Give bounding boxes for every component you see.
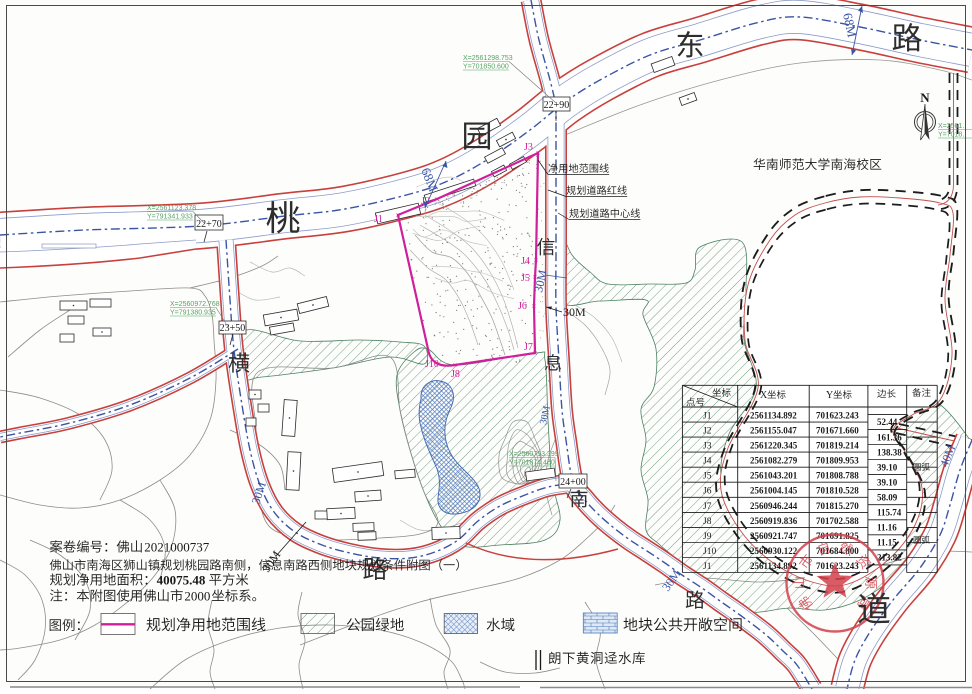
svg-text:X=2560972.768: X=2560972.768 xyxy=(170,301,220,308)
svg-text:J5: J5 xyxy=(703,472,712,482)
svg-text:701702.588: 701702.588 xyxy=(816,516,859,526)
svg-text:22+90: 22+90 xyxy=(544,100,570,111)
svg-text:2560946.244: 2560946.244 xyxy=(750,501,798,511)
svg-text:J1: J1 xyxy=(703,411,712,421)
svg-text:J4: J4 xyxy=(521,256,530,267)
svg-text:J1: J1 xyxy=(374,214,383,225)
svg-text:2021000737: 2021000737 xyxy=(144,540,210,555)
svg-text:X=2561123.378: X=2561123.378 xyxy=(147,205,196,212)
svg-text:X: X xyxy=(760,390,768,401)
svg-text:J5: J5 xyxy=(521,273,530,284)
svg-text:2561043.201: 2561043.201 xyxy=(750,471,798,481)
svg-text:2561004.145: 2561004.145 xyxy=(750,486,798,496)
svg-text:701819.214: 701819.214 xyxy=(816,441,859,451)
svg-text:J7: J7 xyxy=(524,342,533,353)
svg-text:11.15: 11.15 xyxy=(877,538,897,548)
svg-text:Y=7018.: Y=7018. xyxy=(938,132,964,139)
svg-text:213.82: 213.82 xyxy=(877,553,902,563)
svg-text:115.74: 115.74 xyxy=(877,508,902,518)
svg-text:701809.953: 701809.953 xyxy=(816,456,859,466)
svg-text:39.10: 39.10 xyxy=(877,477,898,487)
svg-text:J8: J8 xyxy=(703,517,712,527)
svg-text:X=2560753.399: X=2560753.399 xyxy=(509,451,559,458)
svg-text:J9: J9 xyxy=(703,532,712,542)
svg-text:Y=701874.460: Y=701874.460 xyxy=(509,460,555,467)
svg-text:23+50: 23+50 xyxy=(220,323,246,334)
svg-text:701671.660: 701671.660 xyxy=(816,426,859,436)
svg-text:40075.48: 40075.48 xyxy=(157,573,206,588)
svg-text:Y=791380.935: Y=791380.935 xyxy=(170,310,216,317)
svg-text:2560930.122: 2560930.122 xyxy=(750,546,798,556)
svg-text:161.36: 161.36 xyxy=(877,432,902,442)
svg-text:11.16: 11.16 xyxy=(877,523,897,533)
svg-text:J7: J7 xyxy=(703,502,712,512)
svg-text:22+70: 22+70 xyxy=(196,219,222,230)
svg-text:J3: J3 xyxy=(524,142,533,153)
svg-text:X=2561298.753: X=2561298.753 xyxy=(463,55,513,62)
svg-text:2560919.836: 2560919.836 xyxy=(750,516,798,526)
svg-text:J10: J10 xyxy=(425,359,439,370)
svg-text:J10: J10 xyxy=(703,547,716,557)
svg-text:Y: Y xyxy=(826,390,833,401)
svg-text:2561220.345: 2561220.345 xyxy=(750,441,798,451)
svg-text:Y=701850.600: Y=701850.600 xyxy=(463,64,509,71)
svg-text:J2: J2 xyxy=(703,427,712,437)
svg-text:39.10: 39.10 xyxy=(877,462,898,472)
svg-text:701623.243: 701623.243 xyxy=(816,561,859,571)
svg-text:J1: J1 xyxy=(703,562,712,572)
svg-text:701623.243: 701623.243 xyxy=(816,410,859,420)
svg-text:701815.270: 701815.270 xyxy=(816,501,859,511)
svg-text:2561082.279: 2561082.279 xyxy=(750,456,798,466)
svg-text:2561155.047: 2561155.047 xyxy=(750,426,797,436)
svg-text:J4: J4 xyxy=(703,457,712,467)
svg-text:J6: J6 xyxy=(703,487,712,497)
svg-text:701808.788: 701808.788 xyxy=(816,471,859,481)
svg-text:58.09: 58.09 xyxy=(877,493,898,503)
svg-text:30M: 30M xyxy=(563,305,586,319)
svg-text:52.44: 52.44 xyxy=(877,417,898,427)
svg-text:N: N xyxy=(920,90,930,105)
svg-text:2000: 2000 xyxy=(184,589,210,604)
svg-text:J6: J6 xyxy=(518,301,527,312)
svg-text:2560921.747: 2560921.747 xyxy=(750,531,798,541)
svg-text:2561134.892: 2561134.892 xyxy=(750,410,797,420)
svg-text:Y=791341.933: Y=791341.933 xyxy=(147,214,193,221)
svg-text:138.38: 138.38 xyxy=(877,447,902,457)
svg-text:24+00: 24+00 xyxy=(560,477,586,488)
svg-text:J3: J3 xyxy=(703,442,712,452)
svg-text:J8: J8 xyxy=(451,369,460,380)
svg-text:701810.528: 701810.528 xyxy=(816,486,859,496)
svg-text:X=2561.: X=2561. xyxy=(938,123,964,130)
